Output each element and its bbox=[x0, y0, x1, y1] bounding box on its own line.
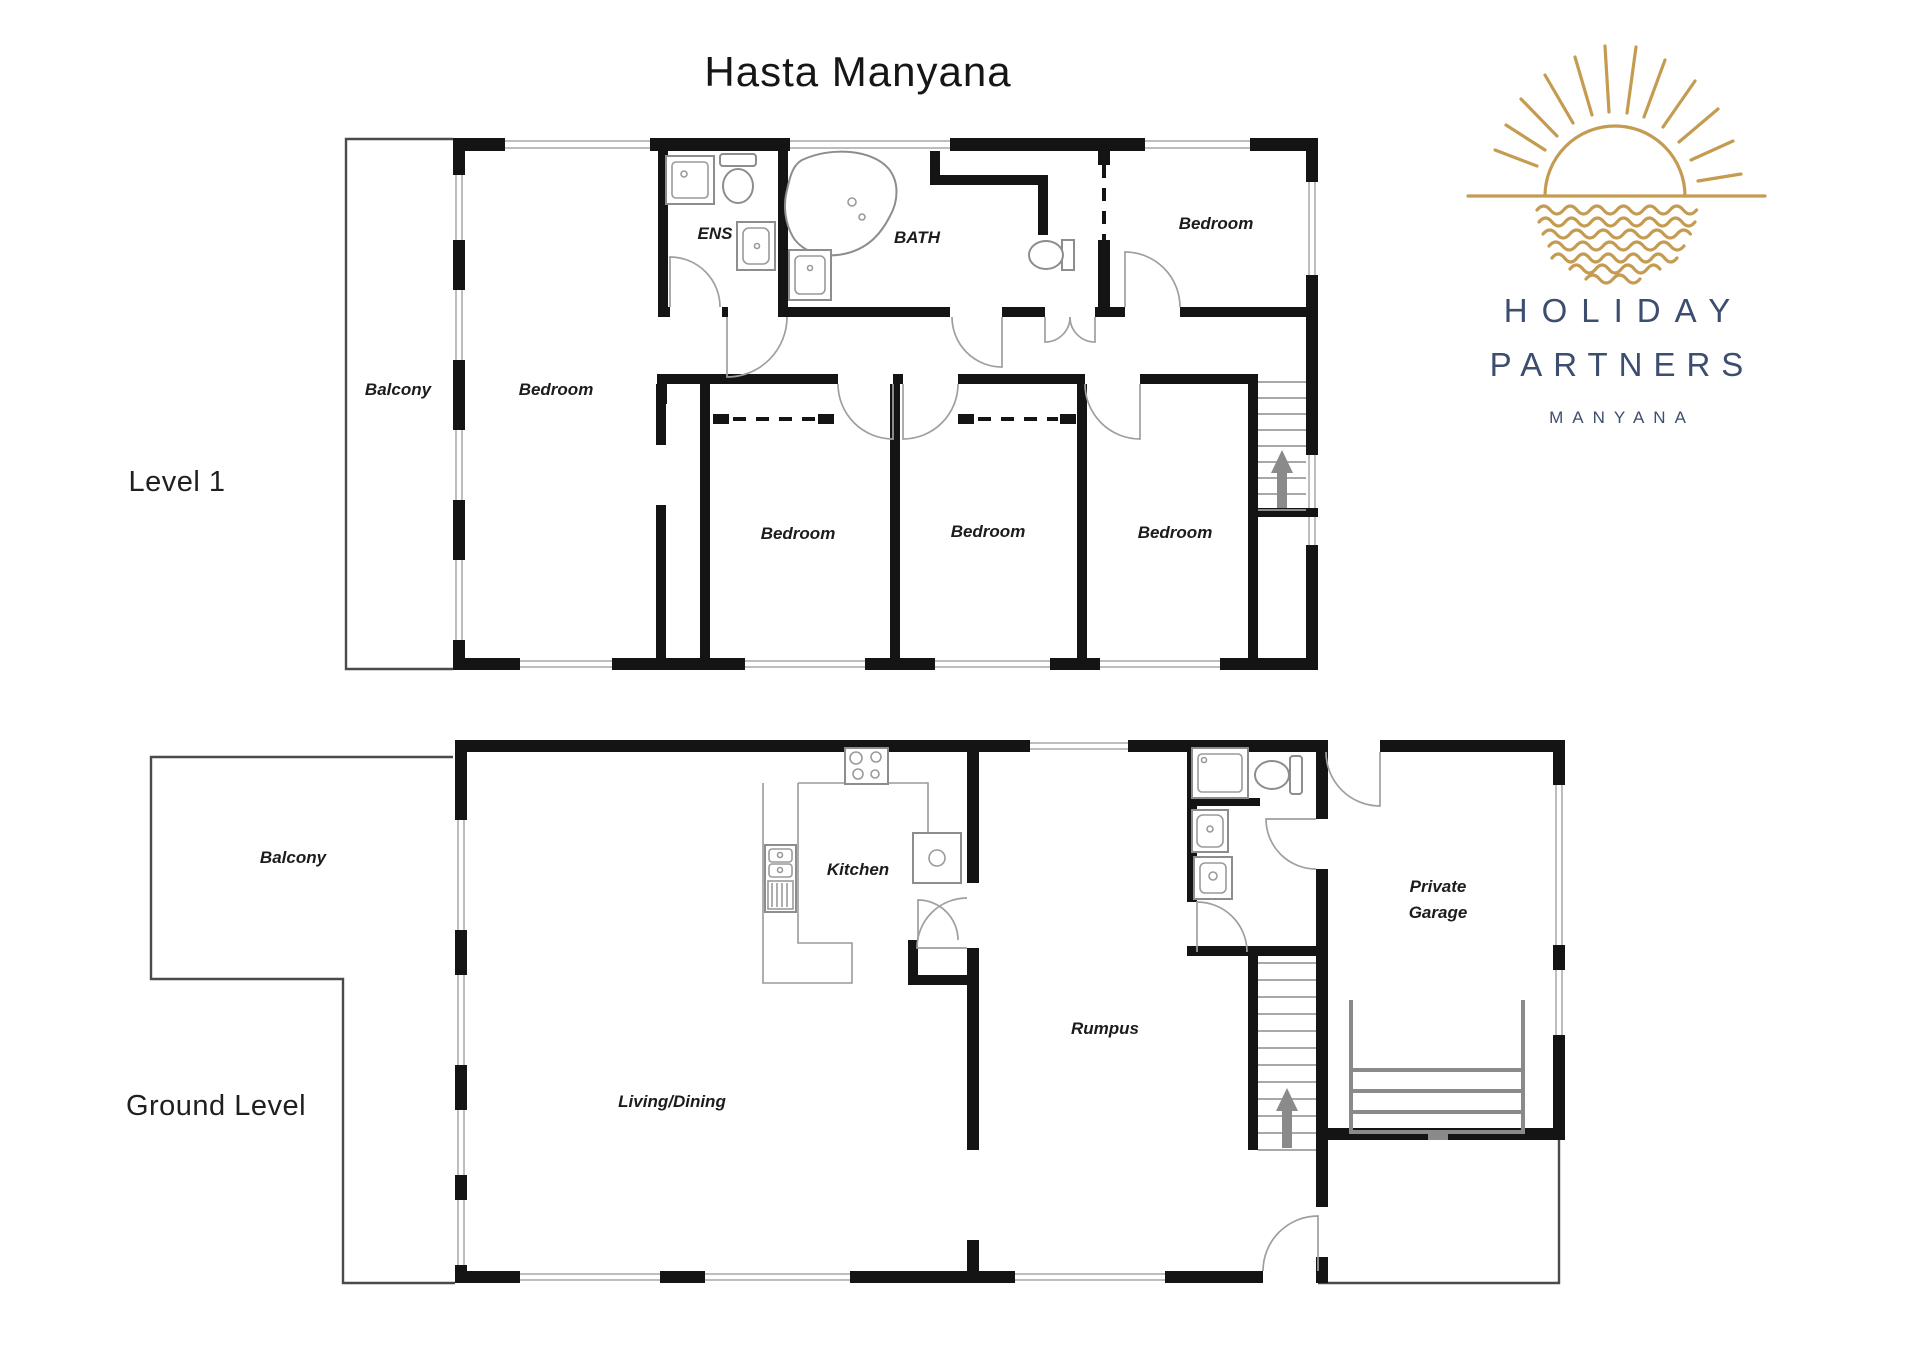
ground-outer-walls bbox=[455, 740, 1565, 1283]
level1-master-bedroom-label: Bedroom bbox=[519, 380, 594, 399]
stairs-up-arrow bbox=[1276, 1088, 1298, 1148]
level1-bedroom-b-label: Bedroom bbox=[951, 522, 1026, 541]
stairs-up-arrow bbox=[1271, 450, 1293, 508]
ground-title: Ground Level bbox=[126, 1090, 306, 1122]
floorplan-canvas: Hasta Manyana bbox=[0, 0, 1920, 1356]
ground-plan: Balcony Kitchen Living/Dining Rumpus Pri… bbox=[126, 740, 1565, 1283]
ground-bathroom-fixtures bbox=[1192, 748, 1302, 899]
ground-porch-outline bbox=[1318, 1140, 1559, 1283]
ens-toilet bbox=[720, 154, 756, 166]
kitchen-fridge bbox=[913, 833, 961, 883]
page-title: Hasta Manyana bbox=[704, 48, 1011, 95]
level1-bath-label: BATH bbox=[894, 228, 941, 247]
logo-text: HOLIDAY PARTNERS MANYANA bbox=[1490, 292, 1755, 427]
holiday-partners-logo: HOLIDAY PARTNERS MANYANA bbox=[1468, 46, 1765, 427]
logo-line1: HOLIDAY bbox=[1504, 292, 1744, 329]
level1-title: Level 1 bbox=[128, 466, 225, 498]
garage-door-handle bbox=[1428, 1132, 1448, 1140]
logo-line3: MANYANA bbox=[1549, 408, 1695, 427]
ground-garage-label-line2: Garage bbox=[1409, 903, 1468, 922]
kitchen-bench bbox=[798, 783, 928, 833]
level1-plan: Balcony Bedroom ENS BATH Bedroom Bedroom… bbox=[128, 138, 1318, 670]
shower bbox=[1192, 748, 1248, 798]
level1-balcony-label: Balcony bbox=[365, 380, 433, 399]
toilet-bowl bbox=[1255, 761, 1289, 789]
garage-door bbox=[1351, 1000, 1523, 1140]
ground-doors bbox=[917, 752, 1380, 1271]
bath-spa bbox=[785, 152, 897, 256]
toilet-tank bbox=[1290, 756, 1302, 794]
sun-waves-icon bbox=[1468, 46, 1765, 283]
level1-bedroom-top-right-label: Bedroom bbox=[1179, 214, 1254, 233]
ground-balcony-label: Balcony bbox=[260, 848, 328, 867]
level1-bedroom-a-label: Bedroom bbox=[761, 524, 836, 543]
ground-interior-walls bbox=[908, 740, 1565, 1283]
ground-living-dining-label: Living/Dining bbox=[618, 1092, 726, 1111]
level1-balcony-outline bbox=[346, 139, 453, 669]
ground-kitchen-label: Kitchen bbox=[827, 860, 889, 879]
level1-ens-label: ENS bbox=[698, 224, 734, 243]
level1-bedroom-c-label: Bedroom bbox=[1138, 523, 1213, 542]
floorplan-page: Hasta Manyana bbox=[0, 0, 1920, 1356]
ground-garage-label-line1: Private bbox=[1410, 877, 1467, 896]
level1-stairs bbox=[1258, 382, 1306, 510]
ground-rumpus-label: Rumpus bbox=[1071, 1019, 1139, 1038]
ground-balcony-outline bbox=[151, 757, 455, 1283]
logo-line2: PARTNERS bbox=[1490, 346, 1755, 383]
ground-stairs bbox=[1258, 963, 1316, 1150]
